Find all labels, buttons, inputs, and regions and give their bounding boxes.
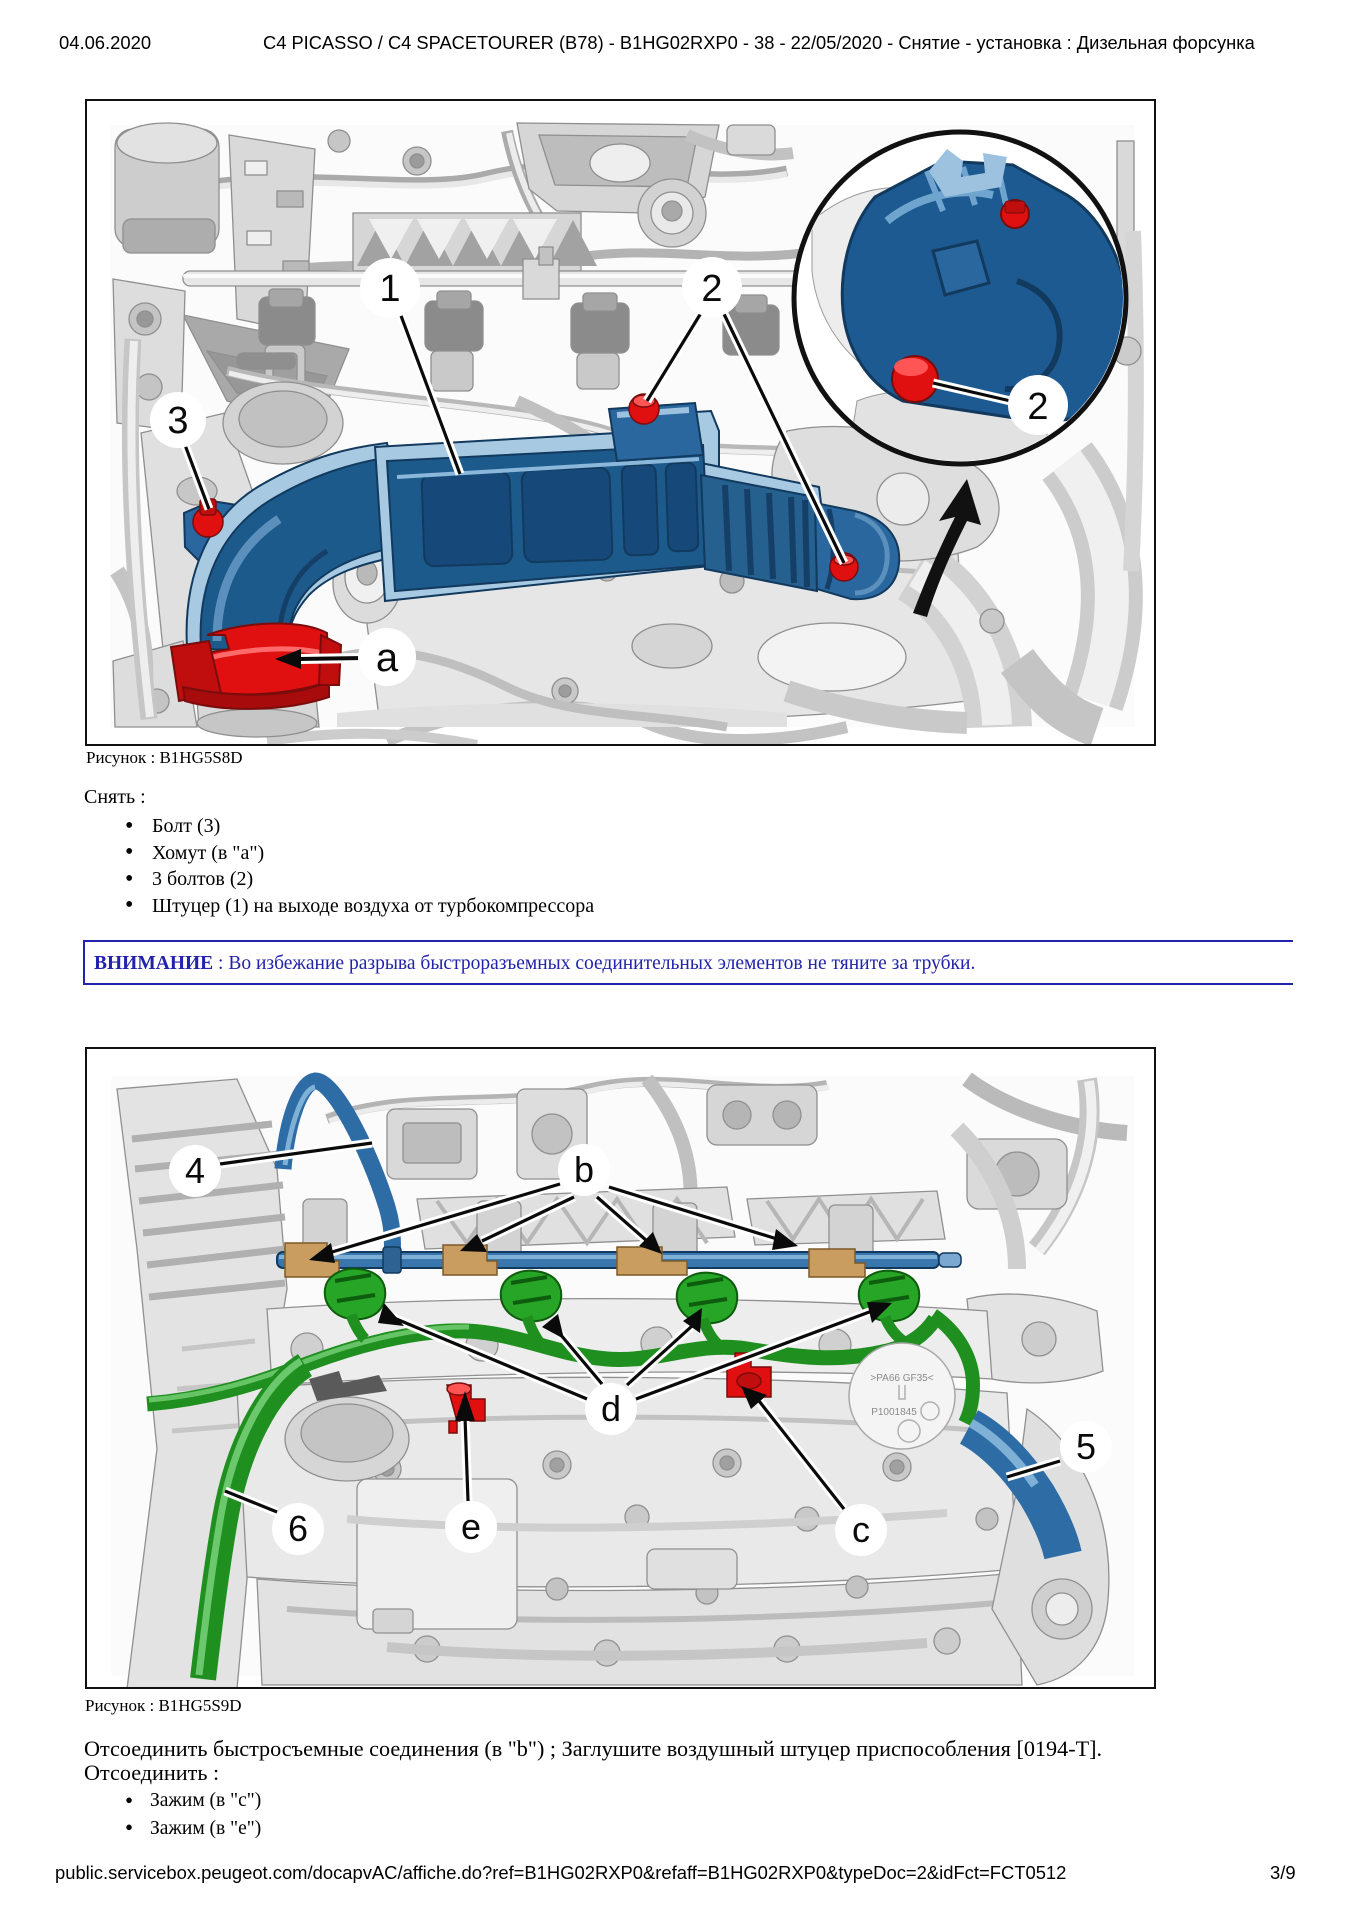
svg-text:1: 1 [379,268,400,310]
svg-text:b: b [574,1149,594,1190]
svg-text:3: 3 [167,400,188,442]
svg-text:2: 2 [701,268,722,310]
svg-text:5: 5 [1076,1426,1096,1467]
svg-text:P1001845: P1001845 [871,1407,917,1418]
svg-text:>PA66 GF35<: >PA66 GF35< [870,1373,933,1384]
svg-text:d: d [601,1388,621,1429]
svg-text:c: c [852,1509,870,1550]
svg-text:a: a [376,636,399,680]
svg-text:2: 2 [1027,386,1048,428]
svg-text:6: 6 [288,1508,308,1549]
svg-text:4: 4 [185,1150,205,1191]
svg-text:e: e [461,1506,481,1547]
